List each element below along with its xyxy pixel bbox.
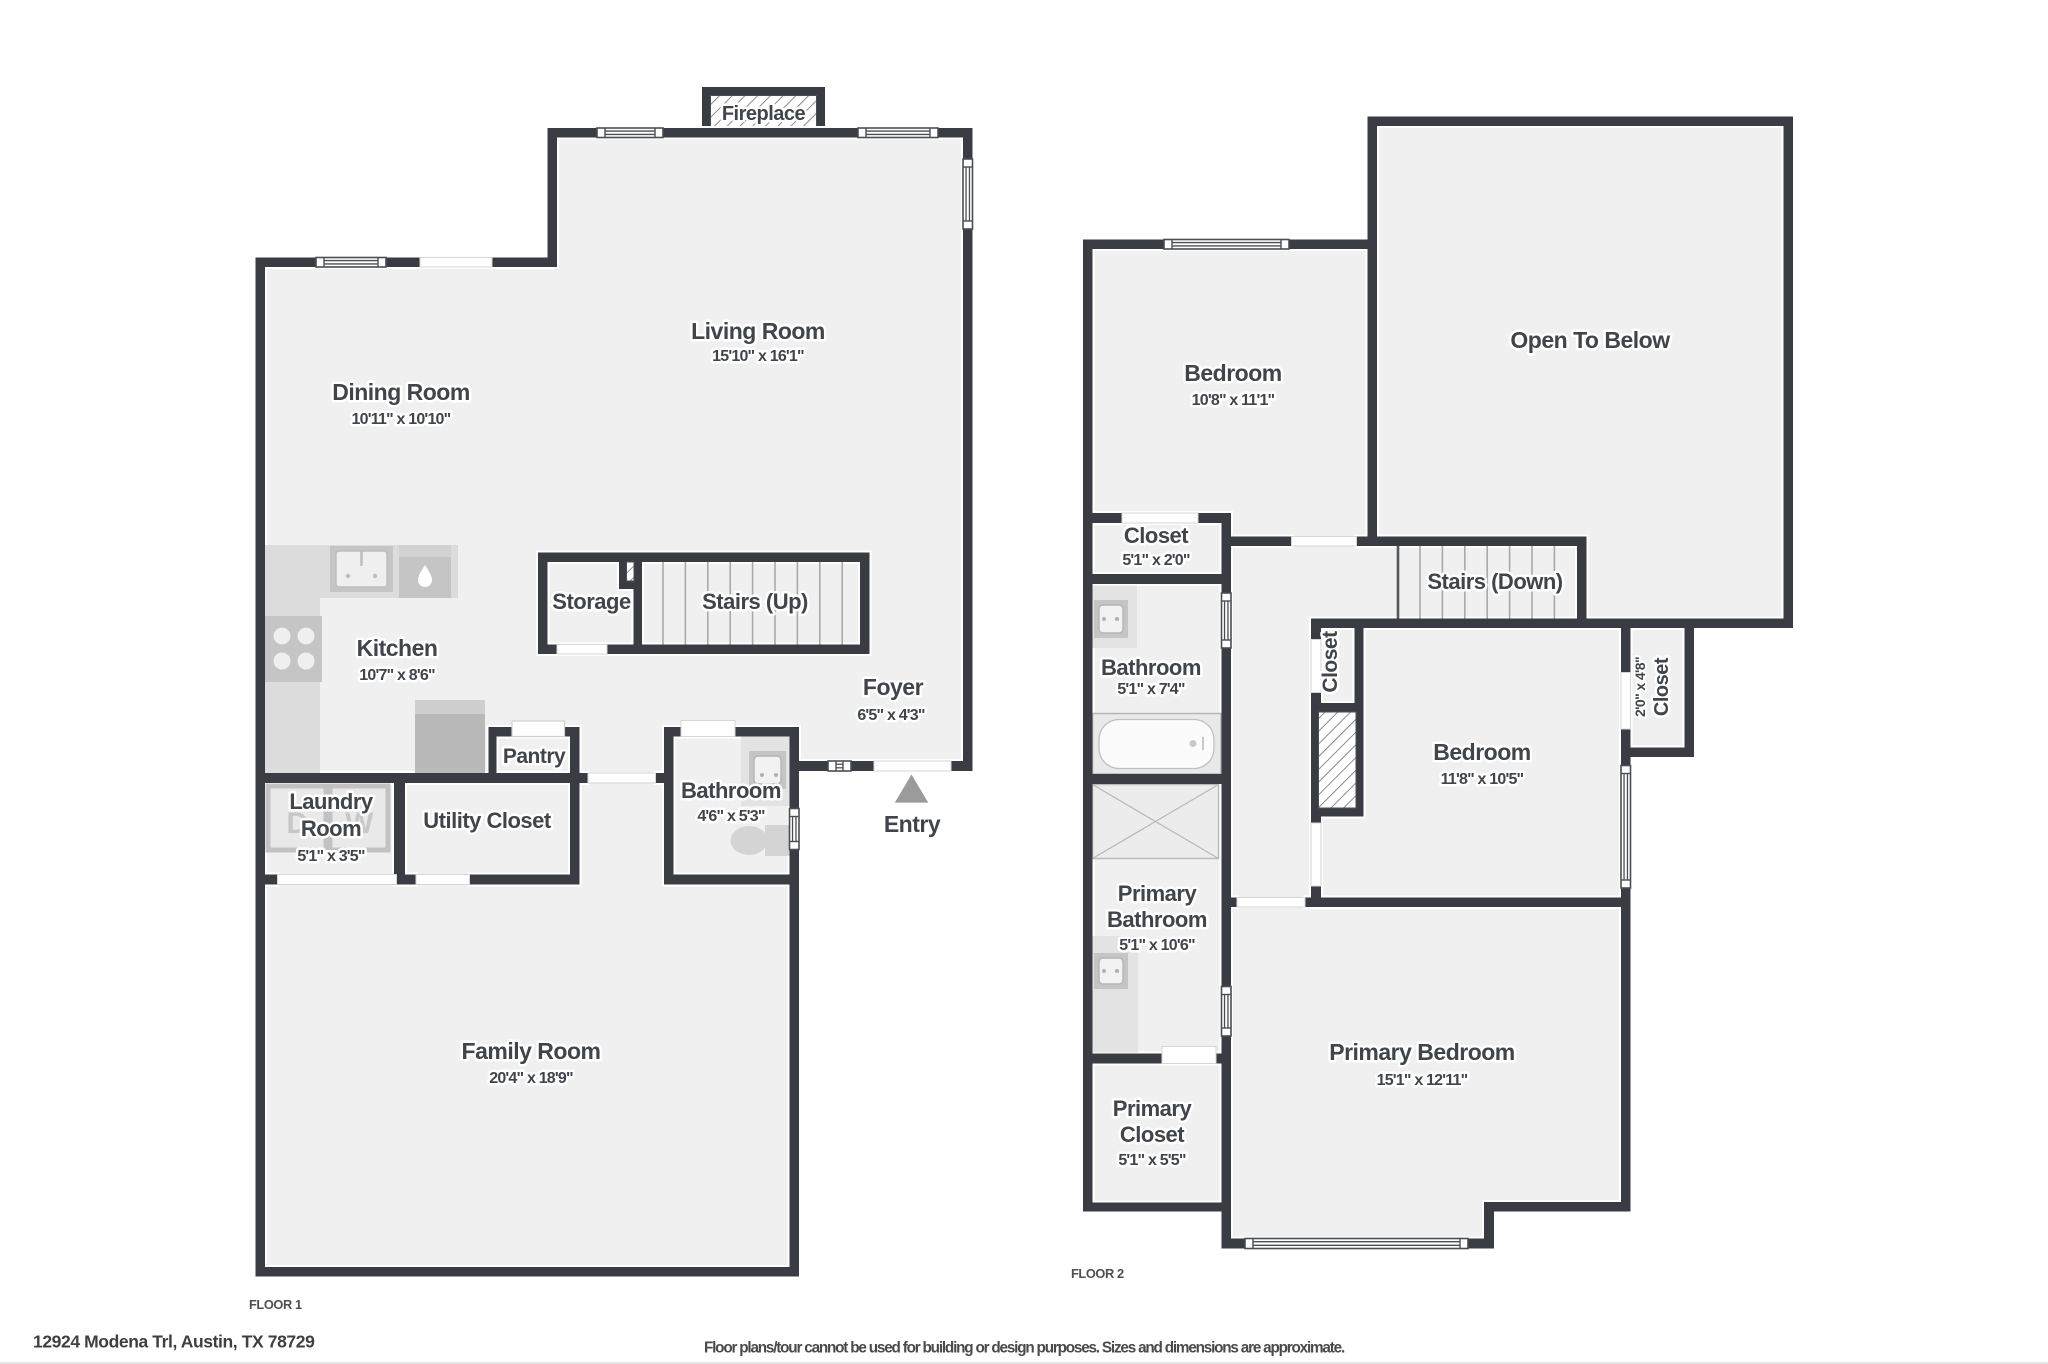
svg-text:Bedroom: Bedroom [1184, 360, 1282, 386]
svg-text:10'7" x 8'6": 10'7" x 8'6" [359, 667, 435, 684]
svg-text:11'8" x 10'5": 11'8" x 10'5" [1441, 771, 1524, 788]
svg-text:4'6" x 5'3": 4'6" x 5'3" [697, 808, 765, 825]
svg-text:Storage: Storage [552, 589, 631, 614]
svg-text:5'1" x 7'4": 5'1" x 7'4" [1117, 681, 1185, 698]
svg-text:Living Room: Living Room [691, 318, 825, 344]
svg-text:FLOOR 1: FLOOR 1 [249, 1297, 302, 1312]
svg-text:Dining Room: Dining Room [332, 379, 470, 405]
svg-text:Family Room: Family Room [462, 1038, 601, 1064]
svg-text:Closet: Closet [1651, 657, 1673, 716]
svg-text:15'1" x 12'11": 15'1" x 12'11" [1377, 1072, 1468, 1089]
svg-text:FLOOR 2: FLOOR 2 [1071, 1266, 1124, 1281]
svg-text:2'0" x 4'8": 2'0" x 4'8" [1632, 657, 1648, 717]
svg-text:Floor plans/tour cannot be use: Floor plans/tour cannot be used for buil… [704, 1340, 1345, 1357]
svg-text:15'10" x 16'1": 15'10" x 16'1" [712, 348, 804, 365]
svg-text:Room: Room [301, 816, 361, 841]
svg-text:12924 Modena Trl, Austin, TX 7: 12924 Modena Trl, Austin, TX 78729 [33, 1332, 315, 1352]
svg-text:Stairs (Up): Stairs (Up) [702, 589, 808, 614]
svg-text:Kitchen: Kitchen [357, 635, 438, 661]
svg-text:Bathroom: Bathroom [1101, 655, 1201, 680]
svg-text:Fireplace: Fireplace [722, 103, 806, 125]
svg-text:10'11" x 10'10": 10'11" x 10'10" [352, 411, 451, 428]
svg-text:5'1" x 5'5": 5'1" x 5'5" [1118, 1152, 1186, 1169]
svg-text:Open To Below: Open To Below [1510, 327, 1670, 353]
svg-text:Closet: Closet [1319, 631, 1342, 693]
svg-text:20'4" x 18'9": 20'4" x 18'9" [489, 1070, 573, 1087]
svg-text:Pantry: Pantry [503, 745, 566, 768]
svg-text:6'5" x 4'3": 6'5" x 4'3" [857, 707, 925, 724]
svg-text:Laundry: Laundry [289, 789, 374, 814]
svg-text:Bedroom: Bedroom [1433, 739, 1531, 765]
svg-text:Utility Closet: Utility Closet [423, 808, 552, 833]
svg-text:Primary Bedroom: Primary Bedroom [1329, 1039, 1515, 1065]
svg-text:Entry: Entry [884, 811, 941, 837]
svg-text:10'8" x 11'1": 10'8" x 11'1" [1192, 392, 1275, 409]
svg-text:Stairs (Down): Stairs (Down) [1427, 569, 1562, 594]
svg-text:5'1" x 10'6": 5'1" x 10'6" [1119, 937, 1195, 954]
svg-text:Closet: Closet [1124, 523, 1189, 548]
svg-text:Primary: Primary [1118, 881, 1198, 906]
svg-text:Primary: Primary [1113, 1096, 1193, 1121]
svg-text:Bathroom: Bathroom [1107, 907, 1207, 932]
svg-text:5'1" x 2'0": 5'1" x 2'0" [1122, 552, 1190, 569]
svg-text:Closet: Closet [1120, 1122, 1185, 1147]
svg-text:Foyer: Foyer [863, 674, 924, 700]
svg-text:Bathroom: Bathroom [681, 778, 781, 803]
svg-text:5'1" x 3'5": 5'1" x 3'5" [297, 848, 365, 865]
